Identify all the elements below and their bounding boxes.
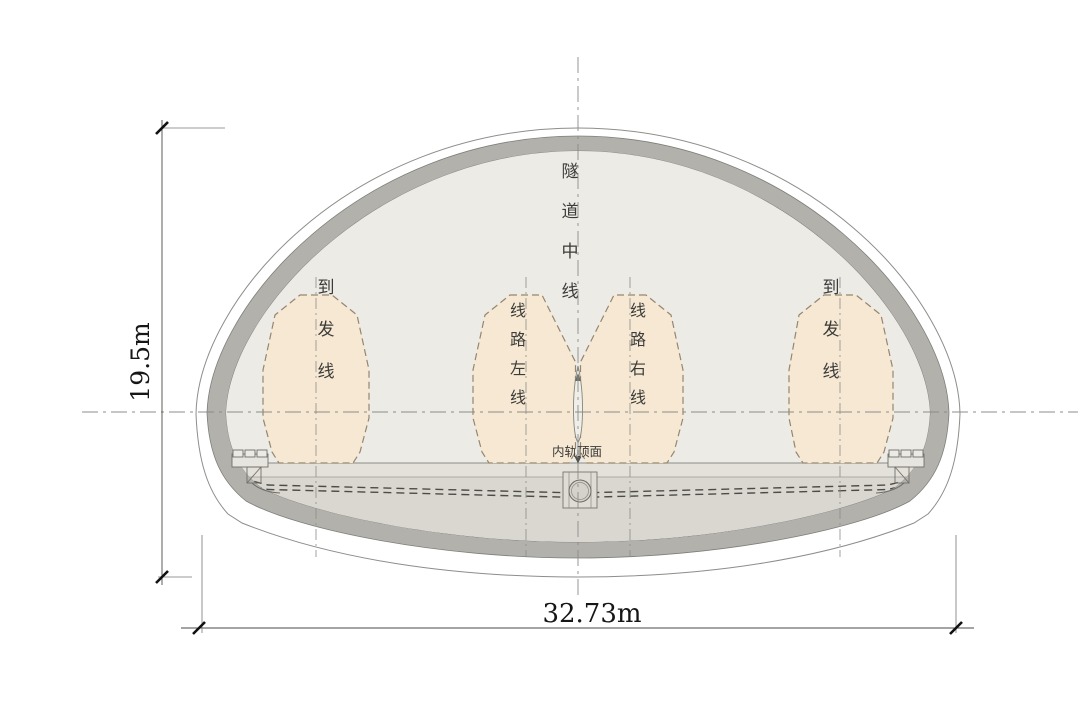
tunnel-cross-section-page: 19.5m 32.73m 隧道中线 到发线 线路左线 线路右线 到发线 内轨顶面	[0, 0, 1085, 711]
drain-pipe-circle	[569, 480, 591, 502]
label-arrival-departure-left: 到发线	[318, 278, 335, 382]
label-rail-top-surface: 内轨顶面	[552, 444, 602, 459]
tunnel-cross-section-diagram: 19.5m 32.73m 隧道中线 到发线 线路左线 线路右线 到发线 内轨顶面	[0, 0, 1085, 711]
label-arrival-departure-right: 到发线	[823, 278, 840, 382]
clearance-gauge-arrival-right	[789, 295, 893, 463]
width-dimension-label: 32.73m	[542, 599, 641, 629]
height-dimension-label: 19.5m	[126, 322, 155, 402]
center-drain	[563, 472, 597, 508]
